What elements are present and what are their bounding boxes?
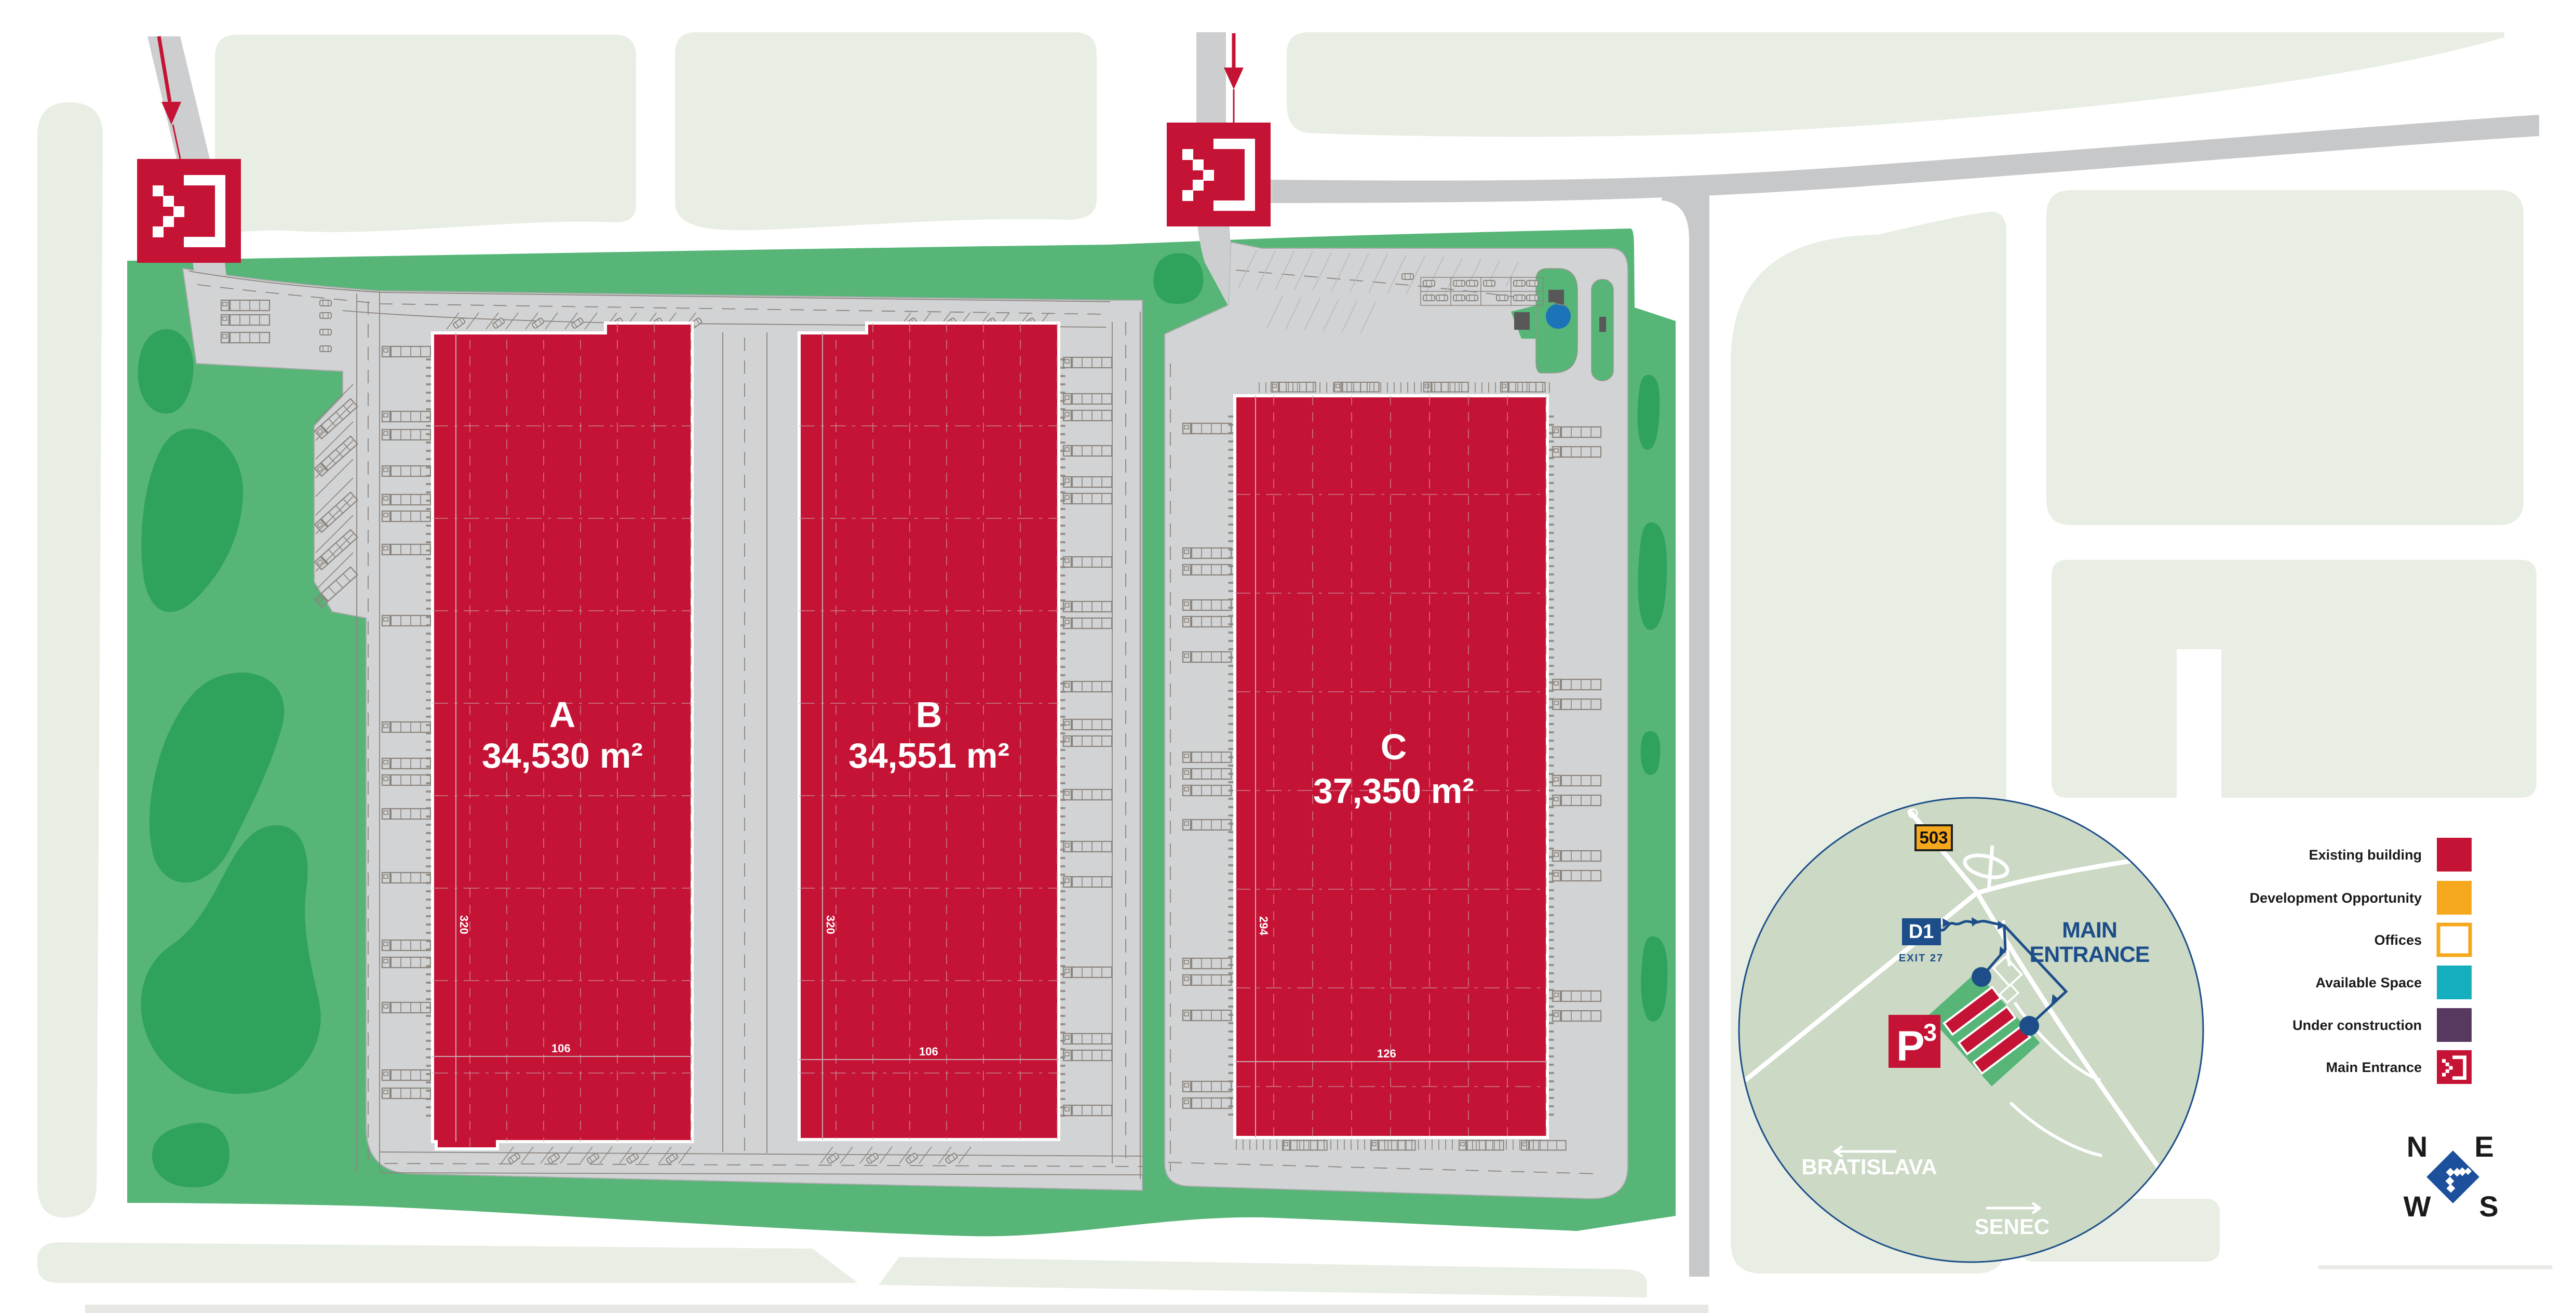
svg-text:37,350 m²: 37,350 m² xyxy=(1313,771,1474,811)
svg-text:BRATISLAVA: BRATISLAVA xyxy=(1801,1155,1937,1179)
svg-text:Offices: Offices xyxy=(2374,932,2422,948)
svg-text:Development Opportunity: Development Opportunity xyxy=(2249,890,2422,906)
svg-text:W: W xyxy=(2404,1190,2431,1223)
svg-text:503: 503 xyxy=(1919,828,1948,847)
svg-text:Existing building: Existing building xyxy=(2309,847,2422,863)
svg-text:P: P xyxy=(1896,1023,1925,1070)
svg-text:N: N xyxy=(2407,1130,2427,1163)
svg-text:A: A xyxy=(549,694,576,735)
svg-text:E: E xyxy=(2474,1130,2493,1163)
svg-text:C: C xyxy=(1381,727,1407,767)
svg-text:D1: D1 xyxy=(1909,921,1934,943)
svg-text:Main Entrance: Main Entrance xyxy=(2326,1060,2422,1075)
svg-text:320: 320 xyxy=(457,915,470,934)
svg-text:3: 3 xyxy=(1923,1019,1937,1046)
svg-text:Under construction: Under construction xyxy=(2292,1017,2422,1033)
svg-text:34,551 m²: 34,551 m² xyxy=(848,736,1009,775)
svg-text:Available Space: Available Space xyxy=(2315,975,2422,990)
svg-text:MAIN: MAIN xyxy=(2062,918,2117,943)
svg-text:320: 320 xyxy=(824,915,837,934)
svg-text:SENEC: SENEC xyxy=(1975,1214,2050,1239)
svg-text:ENTRANCE: ENTRANCE xyxy=(2030,942,2150,967)
svg-text:294: 294 xyxy=(1257,916,1270,935)
svg-text:EXIT 27: EXIT 27 xyxy=(1899,953,1944,964)
svg-text:106: 106 xyxy=(919,1045,938,1058)
svg-text:S: S xyxy=(2479,1190,2498,1223)
svg-text:126: 126 xyxy=(1377,1047,1396,1060)
svg-text:106: 106 xyxy=(551,1042,571,1055)
svg-text:34,530 m²: 34,530 m² xyxy=(482,736,643,775)
svg-text:B: B xyxy=(916,694,942,735)
